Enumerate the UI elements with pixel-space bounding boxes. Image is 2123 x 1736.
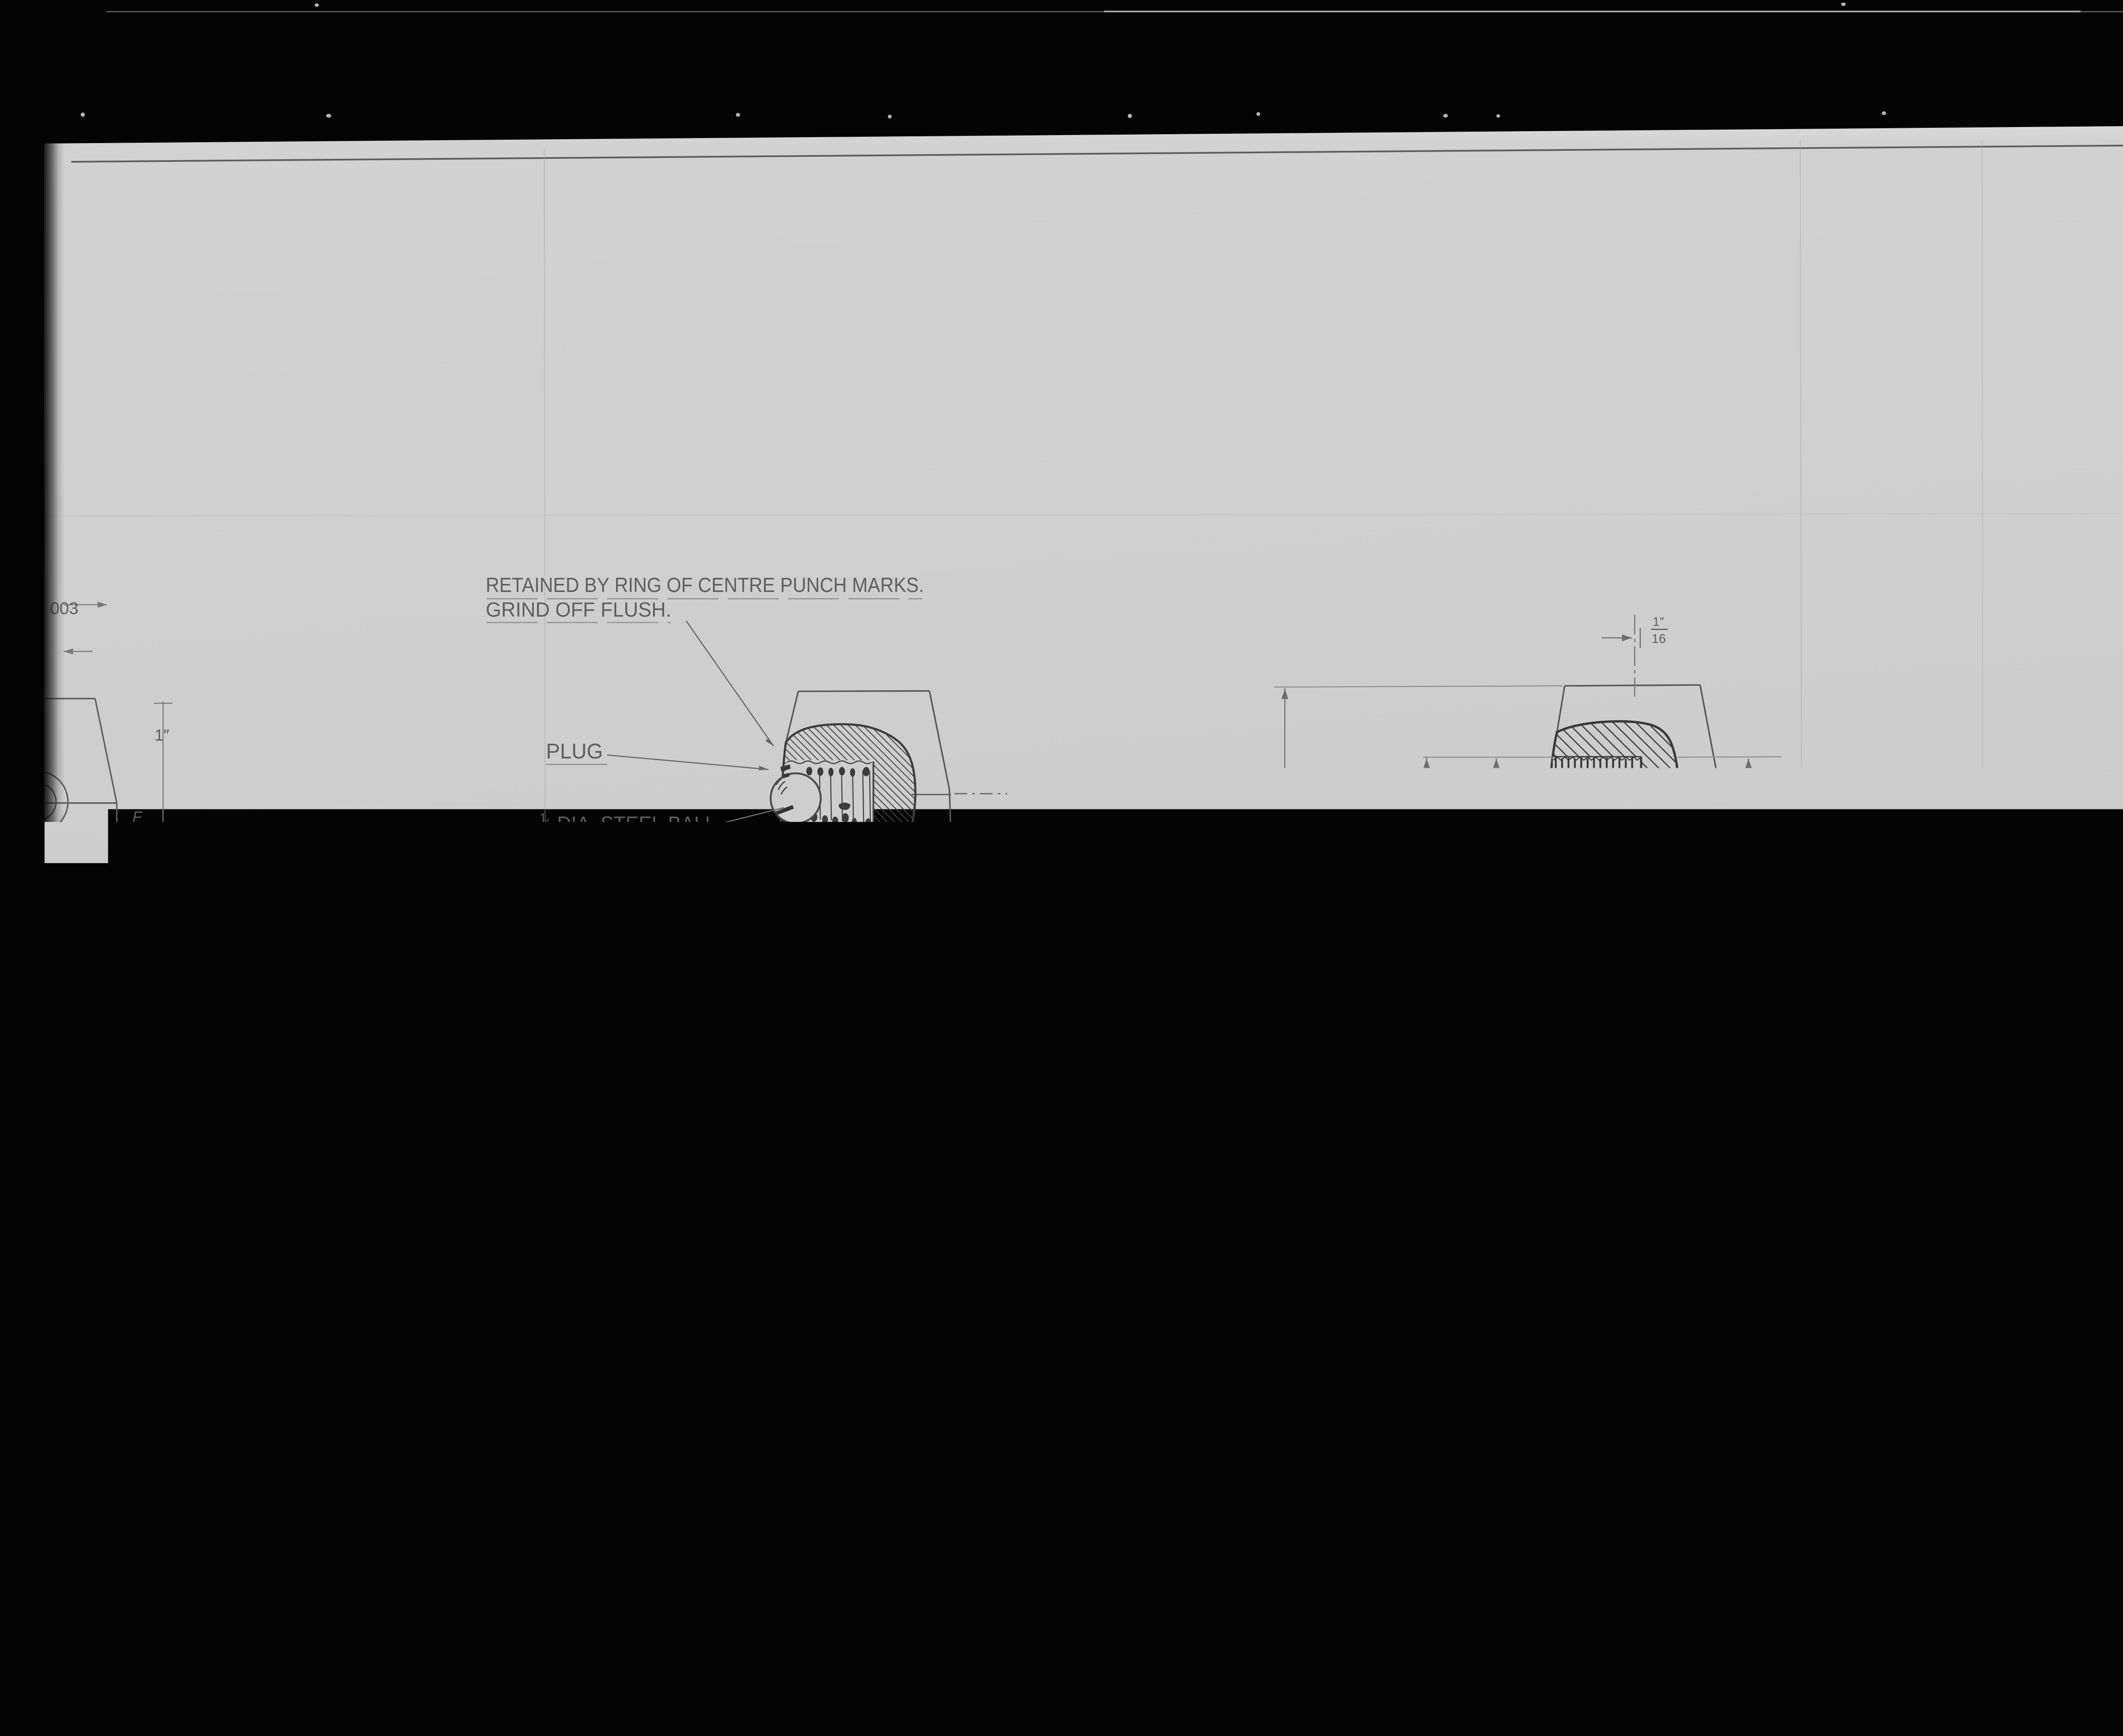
svg-text:DIA: DIA xyxy=(1759,794,1786,812)
svg-text:3: 3 xyxy=(135,1305,143,1321)
svg-text:1″: 1″ xyxy=(1330,888,1342,902)
svg-text:16: 16 xyxy=(1570,1020,1585,1036)
svg-text:1″: 1″ xyxy=(1439,1018,1451,1033)
svg-text:F: F xyxy=(134,855,144,872)
svg-text:3″: 3″ xyxy=(1483,785,1495,800)
svg-text:R: R xyxy=(1571,1156,1582,1174)
svg-text:F: F xyxy=(103,1130,113,1148)
svg-text:4: 4 xyxy=(1484,802,1491,817)
svg-text:R: R xyxy=(90,1090,101,1108)
svg-text:32: 32 xyxy=(1428,856,1443,871)
svg-text:F: F xyxy=(137,946,147,963)
svg-text:+ ·02: + ·02 xyxy=(1642,1186,1677,1203)
svg-text:F: F xyxy=(137,1041,147,1058)
svg-text:SPRING: SPRING xyxy=(582,860,670,884)
svg-text:5″: 5″ xyxy=(1572,1003,1584,1019)
svg-text:R: R xyxy=(1693,1156,1704,1174)
svg-text:R: R xyxy=(1782,1060,1793,1077)
svg-text:ERS NAME & YEAR OF SUPPLY: ERS NAME & YEAR OF SUPPLY xyxy=(45,1280,291,1302)
svg-text:2: 2 xyxy=(546,823,554,838)
svg-text:1″: 1″ xyxy=(1678,1148,1690,1163)
svg-text:4: 4 xyxy=(77,1098,85,1113)
svg-text:−: − xyxy=(1315,905,1323,921)
svg-text:1″: 1″ xyxy=(1741,988,1753,1002)
svg-text:16″: 16″ xyxy=(149,1312,171,1328)
svg-text:GRIND OFF FLUSH.: GRIND OFF FLUSH. xyxy=(486,599,671,621)
svg-text:B.S.F: B.S.F xyxy=(1499,794,1541,812)
svg-text:PLUG: PLUG xyxy=(546,739,603,763)
svg-text:END ELEVATION.: END ELEVATION. xyxy=(1486,1262,1842,1321)
svg-text:32: 32 xyxy=(1327,905,1341,919)
svg-text:8: 8 xyxy=(1625,1205,1633,1221)
svg-text:32: 32 xyxy=(1289,910,1305,926)
svg-text:″: ″ xyxy=(182,1021,186,1035)
svg-text:8: 8 xyxy=(1742,1005,1749,1019)
svg-text:4: 4 xyxy=(1265,885,1287,927)
svg-text:F: F xyxy=(135,878,145,896)
svg-text:·005: ·005 xyxy=(1454,846,1488,865)
svg-text:F: F xyxy=(134,978,144,996)
svg-text:8: 8 xyxy=(1557,1165,1564,1180)
svg-text:8: 8 xyxy=(1590,888,1598,905)
svg-text:2: 2 xyxy=(1413,1011,1434,1053)
svg-text:1: 1 xyxy=(1604,1183,1623,1221)
svg-text:5″: 5″ xyxy=(1429,839,1442,854)
svg-text:F: F xyxy=(124,1106,134,1123)
svg-text:1″: 1″ xyxy=(1556,1148,1568,1163)
svg-text:1: 1 xyxy=(1411,836,1428,870)
svg-text:ASSEMBLY.: ASSEMBLY. xyxy=(736,1267,956,1316)
svg-text:F: F xyxy=(135,1000,145,1017)
svg-text:F: F xyxy=(138,1068,148,1085)
svg-text:16: 16 xyxy=(1652,632,1666,646)
svg-text:16: 16 xyxy=(1764,1068,1779,1083)
svg-text:F: F xyxy=(136,1022,146,1039)
svg-text:8: 8 xyxy=(1679,1165,1687,1180)
svg-text:RETAINED BY RING OF CENTRE PUN: RETAINED BY RING OF CENTRE PUNCH MARKS. xyxy=(486,574,924,597)
svg-text:8: 8 xyxy=(1439,1036,1446,1051)
svg-text:1″: 1″ xyxy=(155,727,169,744)
svg-text:− 0·0: − 0·0 xyxy=(1642,1205,1678,1222)
svg-text:− 0: − 0 xyxy=(1456,1035,1478,1052)
svg-text:F: F xyxy=(133,831,144,849)
svg-text:1″: 1″ xyxy=(1653,615,1664,629)
svg-text:DIA. STEEL BALL: DIA. STEEL BALL xyxy=(557,813,716,835)
svg-text:3: 3 xyxy=(75,1082,82,1097)
svg-text:+: + xyxy=(1314,888,1322,905)
svg-text:WITHOUT BALL CATCH.: WITHOUT BALL CATCH. xyxy=(1521,1339,1759,1361)
svg-text:CHARACTERS: CHARACTERS xyxy=(178,1307,271,1329)
svg-text:R: R xyxy=(1588,1012,1599,1029)
svg-text:+ ·02: + ·02 xyxy=(183,1036,219,1053)
svg-text:5″: 5″ xyxy=(1765,1051,1778,1066)
svg-text:+ ·02: + ·02 xyxy=(1456,1016,1491,1034)
svg-text:F: F xyxy=(135,901,145,919)
svg-text:TO SHOW BALL CATCH.: TO SHOW BALL CATCH. xyxy=(736,1367,960,1389)
svg-text:4: 4 xyxy=(1744,802,1752,817)
svg-text:7″: 7″ xyxy=(1624,1187,1637,1203)
svg-text:1″: 1″ xyxy=(1480,1084,1497,1105)
svg-text:2: 2 xyxy=(152,1032,176,1079)
svg-text:PART SECTION ON END ELEVATION: PART SECTION ON END ELEVATION xyxy=(706,1339,1025,1362)
svg-text:7″: 7″ xyxy=(1589,870,1602,886)
svg-text:3″: 3″ xyxy=(1743,785,1756,800)
svg-text:F: F xyxy=(132,808,143,826)
svg-text:9″: 9″ xyxy=(1291,892,1304,908)
svg-text:− 0·0: − 0·0 xyxy=(183,1056,219,1074)
